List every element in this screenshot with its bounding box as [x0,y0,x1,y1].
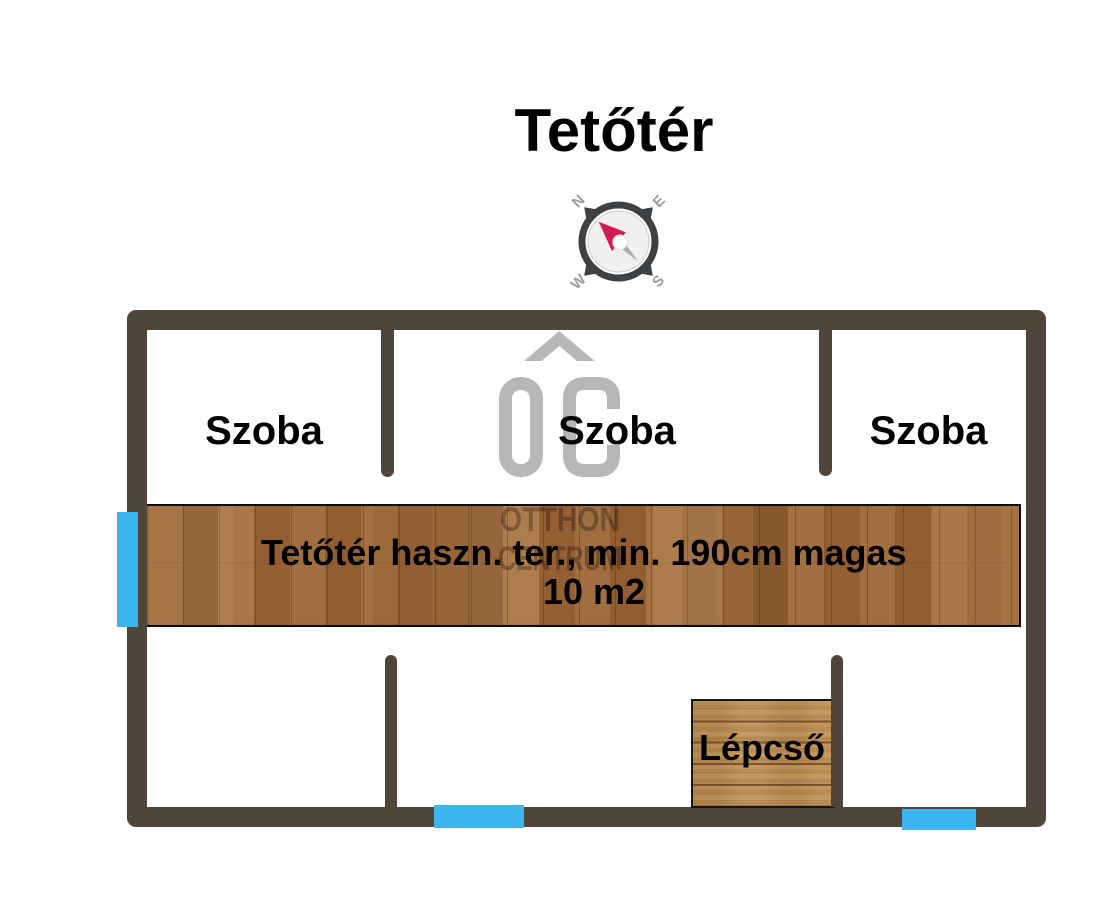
svg-text:S: S [649,272,668,291]
